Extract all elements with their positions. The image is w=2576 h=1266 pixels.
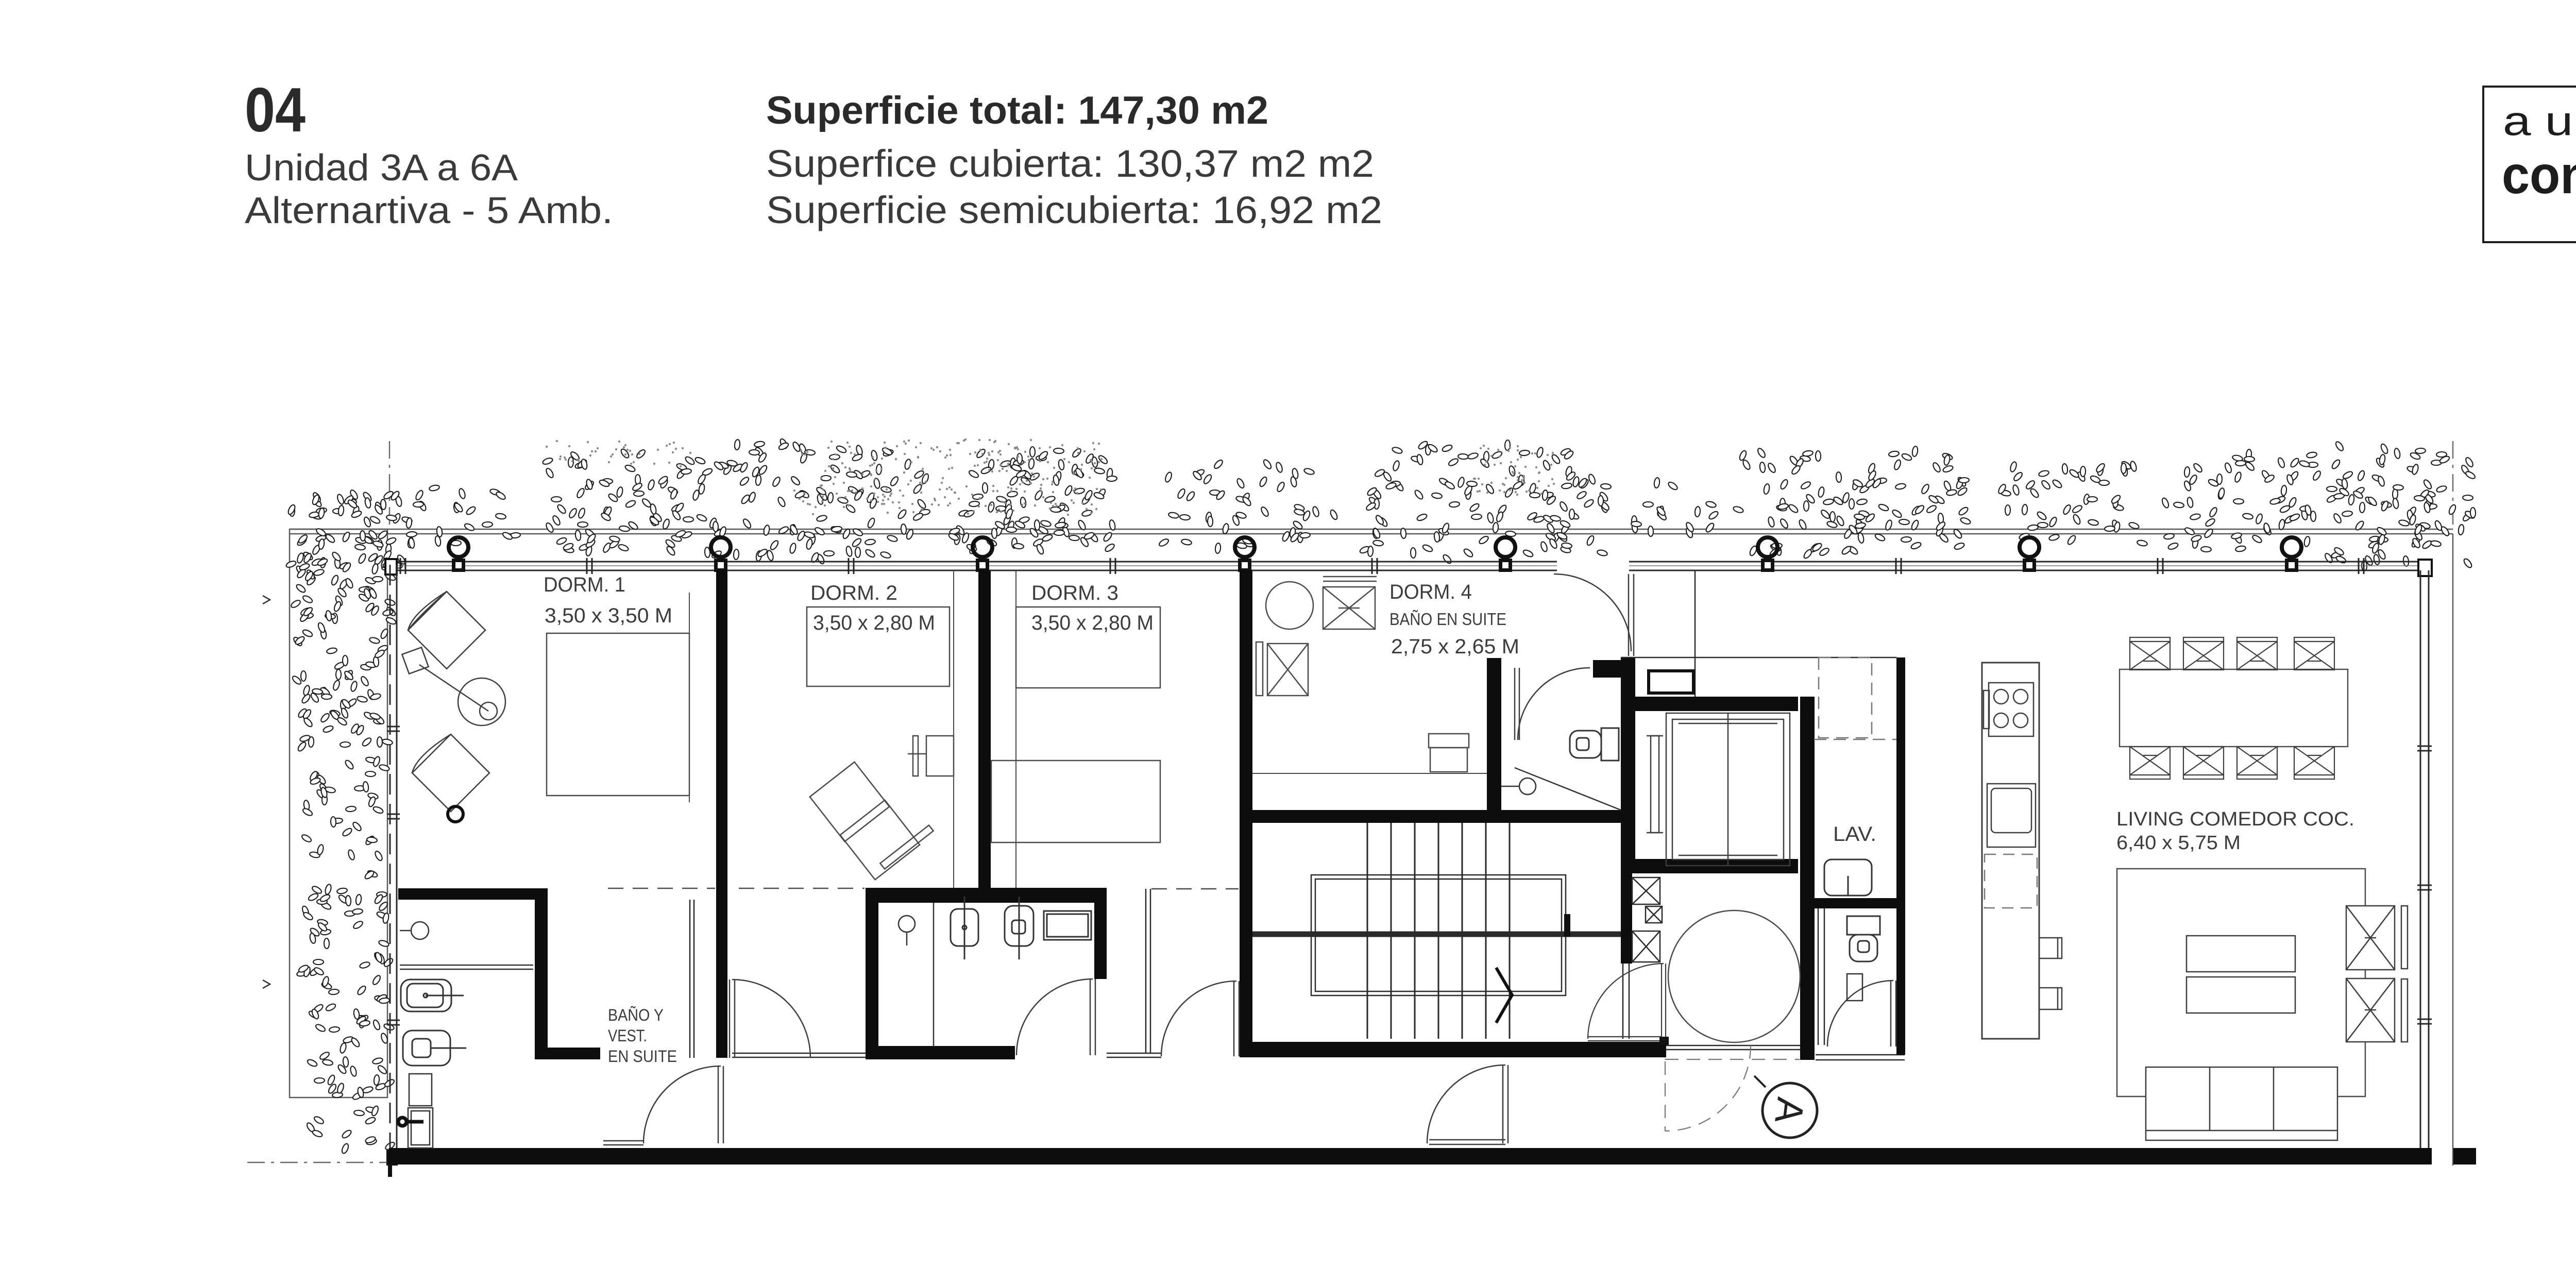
svg-text:LIVING COMEDOR COC.: LIVING COMEDOR COC.	[2116, 808, 2354, 830]
svg-text:6,40 x 5,75 M: 6,40 x 5,75 M	[2116, 832, 2241, 854]
svg-text:a u r a: a u r a	[2503, 98, 2576, 144]
svg-text:Unidad 3A a 6A: Unidad 3A a 6A	[245, 147, 518, 189]
svg-text:DORM. 1: DORM. 1	[544, 573, 625, 596]
svg-text:A: A	[1767, 1095, 1812, 1126]
svg-text:BAÑO Y: BAÑO Y	[608, 1006, 664, 1024]
svg-text:DORM. 4: DORM. 4	[1389, 581, 1472, 603]
svg-text:EN SUITE: EN SUITE	[608, 1047, 677, 1066]
svg-text:Superficie total: 147,30 m2: Superficie total: 147,30 m2	[766, 89, 1268, 132]
svg-text:conde: conde	[2502, 145, 2576, 205]
svg-text:3,50 x 2,80 M: 3,50 x 2,80 M	[813, 612, 935, 634]
svg-text:Superfice cubierta: 130,37 m2: Superfice cubierta: 130,37 m2 m2	[766, 142, 1374, 185]
svg-text:DORM. 2: DORM. 2	[810, 582, 897, 604]
svg-text:3,50 x 2,80 M: 3,50 x 2,80 M	[1031, 612, 1154, 634]
svg-text:BAÑO EN SUITE: BAÑO EN SUITE	[1389, 610, 1506, 629]
svg-text:VEST.: VEST.	[608, 1026, 647, 1045]
svg-text:DORM. 3: DORM. 3	[1031, 582, 1118, 604]
svg-text:Superficie semicubierta: 16,92: Superficie semicubierta: 16,92 m2	[766, 189, 1382, 231]
svg-text:04: 04	[245, 75, 306, 145]
svg-text:3,50 x 3,50 M: 3,50 x 3,50 M	[545, 604, 672, 627]
svg-text:2,75 x 2,65 M: 2,75 x 2,65 M	[1391, 635, 1519, 658]
svg-text:LAV.: LAV.	[1833, 823, 1876, 846]
svg-text:Alternartiva - 5 Amb.: Alternartiva - 5 Amb.	[245, 190, 613, 231]
